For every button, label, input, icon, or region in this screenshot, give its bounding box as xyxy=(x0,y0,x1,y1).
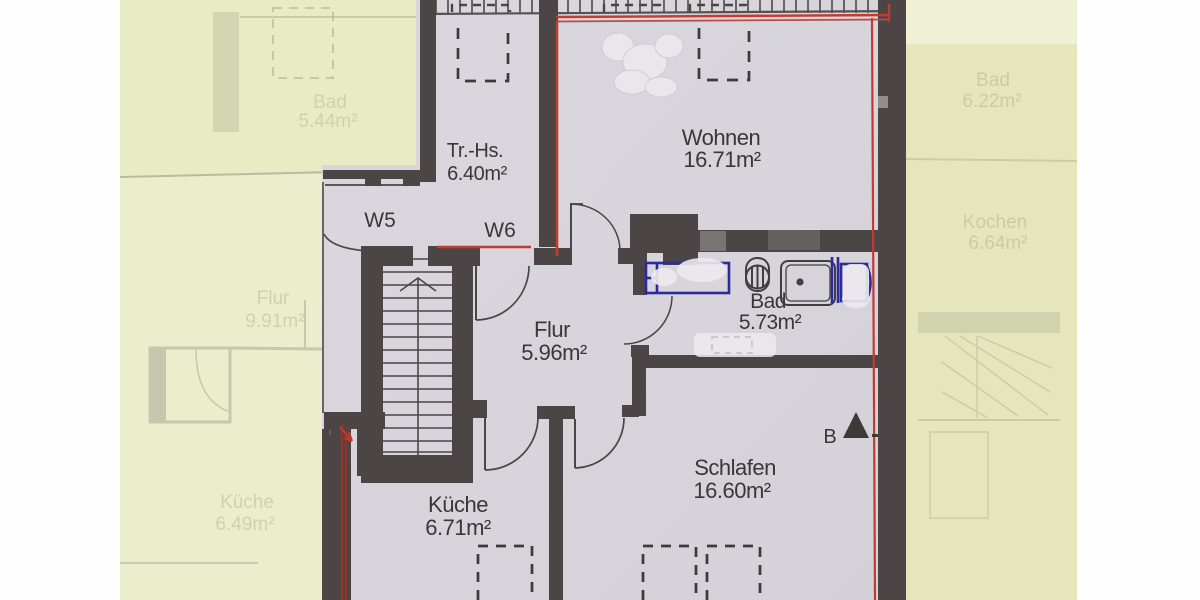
svg-text:Flur: Flur xyxy=(257,288,290,309)
svg-text:6.71m²: 6.71m² xyxy=(425,515,491,540)
svg-text:W5: W5 xyxy=(364,209,396,232)
svg-text:Bad: Bad xyxy=(976,70,1010,91)
svg-text:6.22m²: 6.22m² xyxy=(962,91,1021,112)
svg-text:Küche: Küche xyxy=(428,492,488,517)
svg-text:16.71m²: 16.71m² xyxy=(683,147,760,172)
svg-text:9.91m²: 9.91m² xyxy=(245,311,304,332)
svg-text:Tr.-Hs.: Tr.-Hs. xyxy=(447,140,503,162)
svg-text:W6: W6 xyxy=(484,219,516,242)
svg-text:Küche: Küche xyxy=(220,492,274,513)
svg-text:B: B xyxy=(823,426,836,448)
svg-text:5.73m²: 5.73m² xyxy=(739,311,802,334)
svg-text:Schlafen: Schlafen xyxy=(694,455,776,480)
svg-text:5.96m²: 5.96m² xyxy=(521,340,587,365)
svg-text:16.60m²: 16.60m² xyxy=(693,478,770,503)
svg-text:Bad: Bad xyxy=(313,92,347,113)
svg-text:6.64m²: 6.64m² xyxy=(968,233,1027,254)
svg-text:6.40m²: 6.40m² xyxy=(447,163,508,185)
svg-text:Bad: Bad xyxy=(750,290,786,313)
svg-text:5.44m²: 5.44m² xyxy=(298,111,357,132)
svg-text:6.49m²: 6.49m² xyxy=(215,514,274,535)
svg-text:Kochen: Kochen xyxy=(963,212,1027,233)
svg-text:Flur: Flur xyxy=(534,317,570,342)
